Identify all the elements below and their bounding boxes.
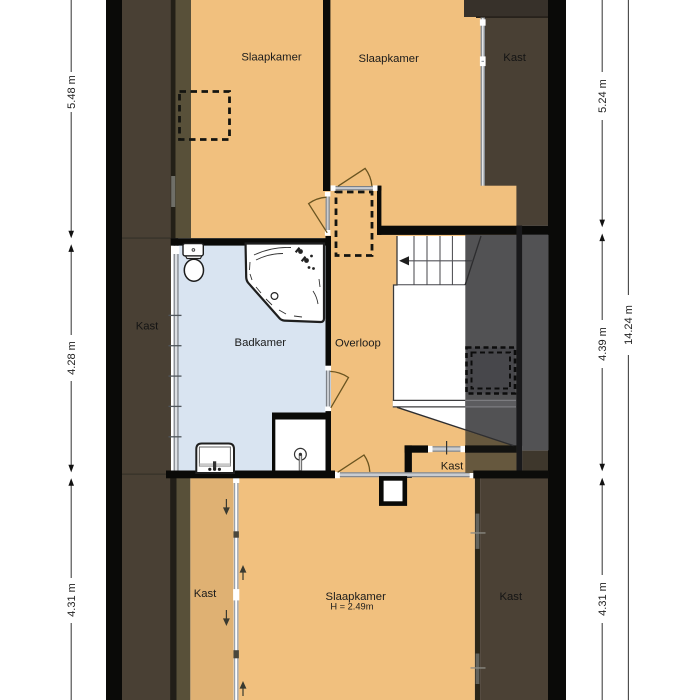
svg-text:Slaapkamer: Slaapkamer [241, 51, 302, 63]
svg-text:4.28 m: 4.28 m [66, 341, 78, 375]
svg-text:5.24 m: 5.24 m [597, 79, 609, 113]
svg-text:4.31 m: 4.31 m [597, 582, 609, 616]
svg-text:H = 2.49m: H = 2.49m [330, 602, 373, 612]
svg-text:Kast: Kast [499, 591, 522, 603]
svg-text:Slaapkamer: Slaapkamer [359, 53, 420, 65]
svg-text:4.39 m: 4.39 m [597, 327, 609, 361]
svg-text:14.24 m: 14.24 m [623, 305, 635, 345]
svg-text:Overloop: Overloop [335, 338, 381, 350]
svg-text:Kast: Kast [136, 320, 159, 332]
svg-text:Kast: Kast [441, 461, 464, 473]
svg-text:4.31 m: 4.31 m [66, 583, 78, 617]
svg-text:Kast: Kast [503, 52, 526, 64]
svg-text:Badkamer: Badkamer [235, 337, 287, 349]
svg-text:5.48 m: 5.48 m [66, 75, 78, 109]
svg-text:Kast: Kast [194, 588, 217, 600]
